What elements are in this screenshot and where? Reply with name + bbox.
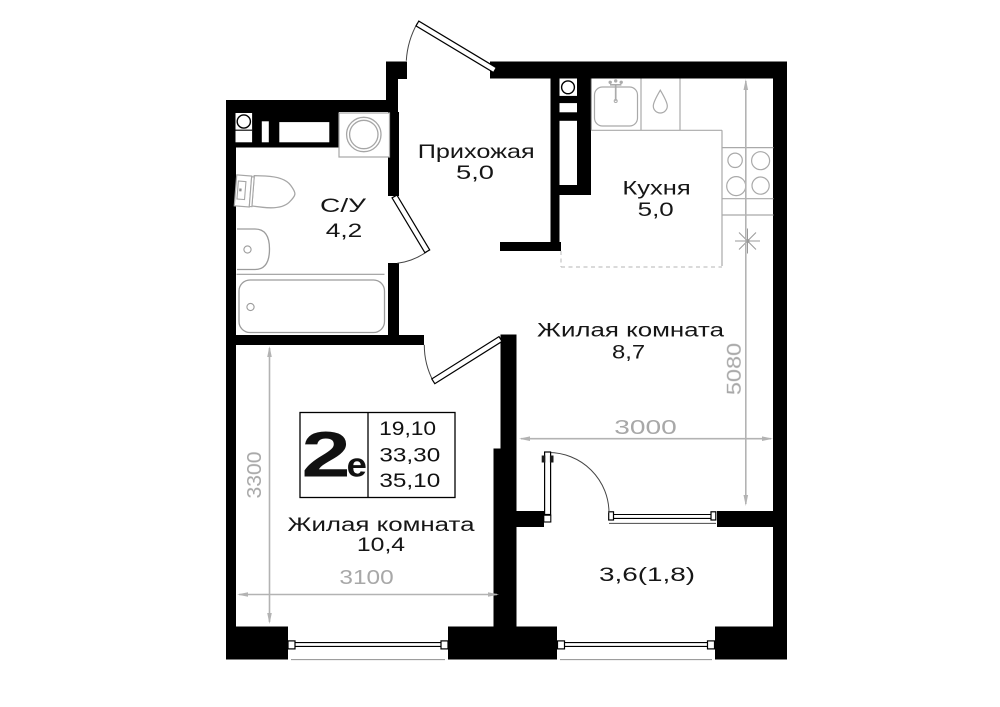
svg-text:Жилая комната: Жилая комната [288,513,475,535]
svg-text:3000: 3000 [614,417,676,439]
svg-text:4,2: 4,2 [326,219,363,241]
svg-text:35,10: 35,10 [379,470,440,492]
svg-text:Кухня: Кухня [622,176,690,198]
svg-text:8,7: 8,7 [612,340,645,362]
svg-text:3,6(1,8): 3,6(1,8) [599,564,695,586]
svg-text:Прихожая: Прихожая [418,141,535,163]
svg-text:10,4: 10,4 [357,534,405,556]
svg-text:Жилая комната: Жилая комната [537,319,724,341]
svg-text:2: 2 [302,419,351,490]
svg-text:5,0: 5,0 [456,163,494,184]
svg-text:С/У: С/У [320,195,367,217]
svg-text:3100: 3100 [339,566,393,588]
svg-text:3300: 3300 [244,451,266,498]
svg-text:19,10: 19,10 [379,419,436,440]
svg-text:5080: 5080 [722,343,745,395]
svg-text:33,30: 33,30 [379,444,440,466]
svg-text:5,0: 5,0 [638,198,674,220]
svg-text:е: е [347,446,367,484]
